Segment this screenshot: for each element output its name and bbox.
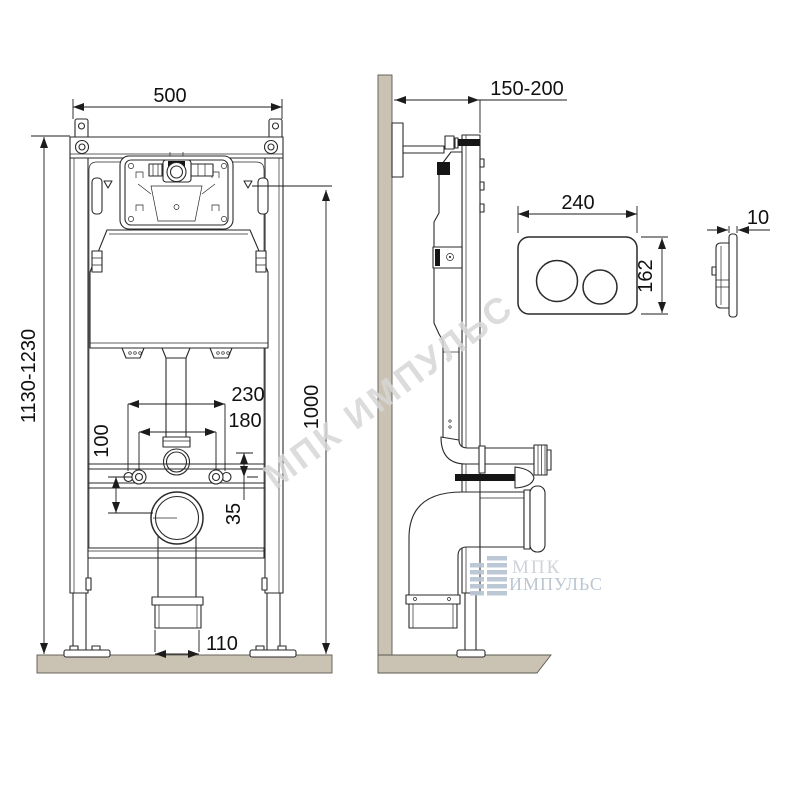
adjustable-foot-right: [250, 650, 296, 657]
dim-plate-width-label: 240: [561, 192, 594, 214]
dim-supply-offset-label: 35: [223, 503, 245, 525]
bowl-outlet-connector: [480, 486, 545, 552]
technical-drawing-page: 500 1130-1230 1000 230 180 100 35 110: [0, 0, 800, 800]
dim-install-height-label: 1130-1230: [18, 329, 40, 423]
dim-outlet-offset-label: 100: [91, 424, 113, 457]
level-marker-right: [244, 181, 252, 188]
dim-socket-width-label: 110: [206, 633, 238, 655]
dim-frame-width-label: 500: [153, 85, 186, 107]
floor-side: [378, 655, 551, 673]
side-view-dimensions: 150-200: [394, 78, 567, 133]
logo-line2: ИМПУЛЬС: [509, 574, 603, 594]
flush-pipe: [441, 437, 551, 475]
dim-plate-height-label: 162: [635, 259, 657, 292]
installation-frame-drawing: 500 1130-1230 1000 230 180 100 35 110: [0, 0, 800, 800]
front-view-drawing: 500 1130-1230 1000 230 180 100 35 110: [18, 85, 332, 673]
dim-frame-depth-label: 150-200: [490, 78, 563, 100]
level-marker-left: [104, 181, 112, 188]
dim-plate-thickness-label: 10: [747, 207, 769, 229]
cistern-tank-front: [90, 230, 268, 348]
cistern-tank-side: [433, 152, 462, 443]
dim-supply-centers-label: 230: [231, 384, 264, 406]
brand-logo: МПК ИМПУЛЬС: [470, 556, 603, 596]
adjustable-foot-left: [64, 650, 110, 657]
flush-plate-side: 10: [707, 207, 770, 317]
flush-plate-front: 240 162: [518, 192, 668, 314]
dim-fixing-centers-label: 180: [228, 410, 261, 432]
floor-front: [37, 655, 332, 673]
